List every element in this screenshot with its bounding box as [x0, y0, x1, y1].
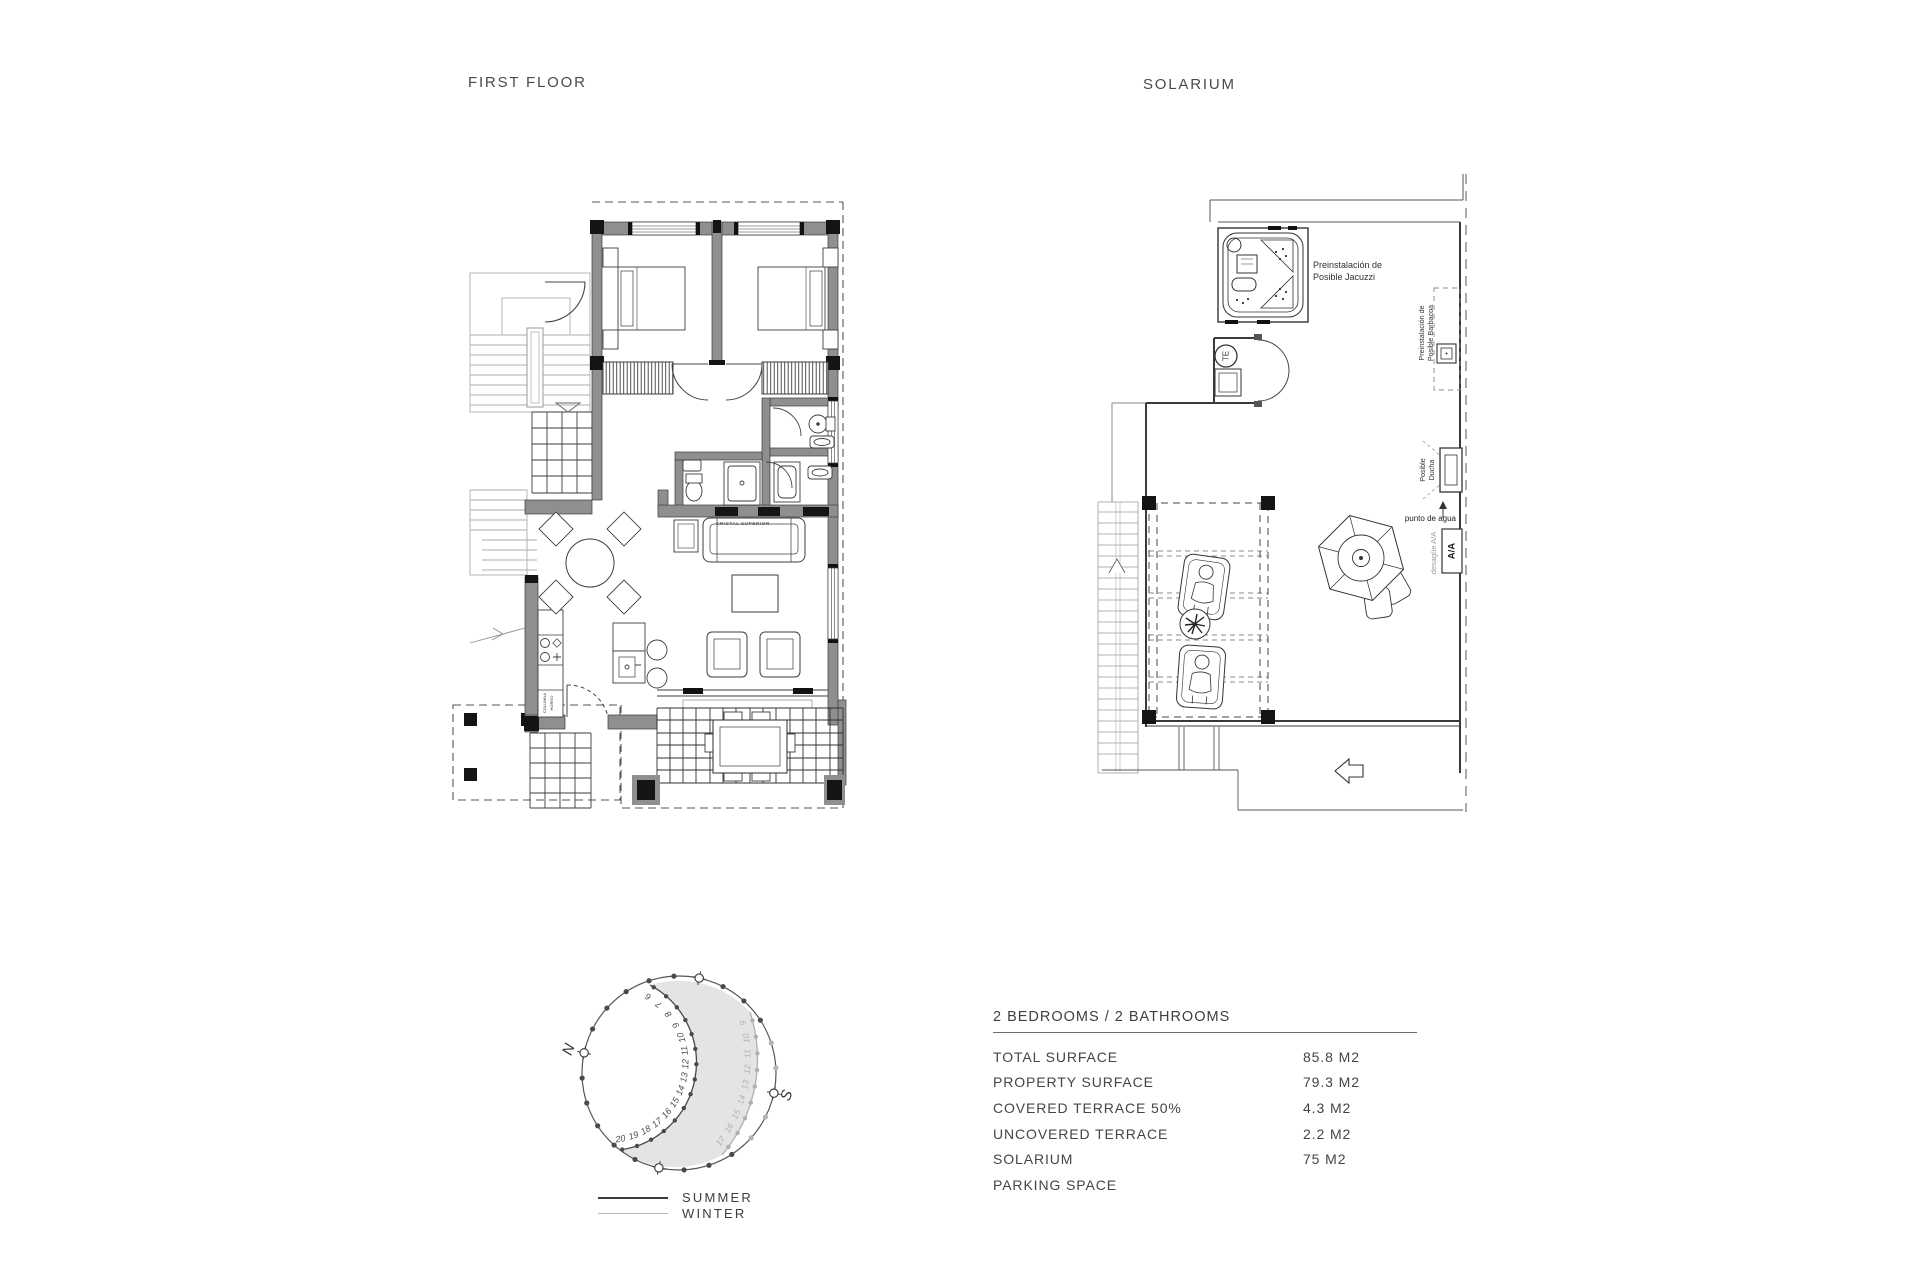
legend-row: WINTER [598, 1206, 753, 1222]
sun-hour-label: 12 [680, 1059, 690, 1069]
north-label: N [560, 1041, 579, 1057]
hour-dot [632, 1157, 637, 1162]
direction-arrow [1335, 759, 1363, 783]
hour-dot [755, 1068, 759, 1072]
entry-patio-grid-upper [532, 403, 592, 493]
hour-dot [693, 1047, 697, 1051]
hour-dot [750, 1018, 754, 1022]
entry-path-grid-lower [530, 733, 591, 808]
spec-row-label: SOLARIUM [993, 1151, 1303, 1167]
hour-dot [673, 1118, 677, 1122]
spec-table-rows: TOTAL SURFACE85.8 M2PROPERTY SURFACE79.3… [993, 1044, 1417, 1198]
svg-text:Preinstalación de: Preinstalación de [1417, 305, 1426, 360]
hour-dot [595, 1123, 600, 1128]
hour-dot [758, 1018, 763, 1023]
hour-dot [675, 1005, 679, 1009]
hour-dot [741, 998, 746, 1003]
jacuzzi-room [1218, 226, 1308, 324]
bedroom-doors [672, 360, 762, 400]
south-label: S [777, 1088, 796, 1103]
spec-row-value: 85.8 M2 [1303, 1049, 1417, 1065]
first-floor-title: FIRST FLOOR [468, 74, 587, 91]
sun-hour-label: 13 [678, 1072, 690, 1084]
solarium-stairs [1098, 502, 1138, 773]
hour-dot [755, 1051, 759, 1055]
spec-row: TOTAL SURFACE85.8 M2 [993, 1044, 1417, 1070]
window-right-1 [828, 401, 838, 463]
hour-dot [720, 984, 725, 989]
spec-row-value: 79.3 M2 [1303, 1074, 1417, 1090]
sun-hour-label: 11 [679, 1045, 690, 1056]
hour-dot [773, 1065, 778, 1070]
hour-dot [682, 1106, 686, 1110]
sun-hour-label: 20 [614, 1133, 626, 1145]
hour-dot [729, 1152, 734, 1157]
legend-label: SUMMER [682, 1190, 753, 1205]
legend-line [598, 1197, 668, 1199]
spec-row-value: 4.3 M2 [1303, 1100, 1417, 1116]
parking-posts [464, 713, 534, 781]
svg-text:A/A: A/A [1447, 543, 1458, 560]
floorplan-sheet: FIRST FLOOR SOLARIUM [0, 0, 1920, 1280]
legend-row: SUMMER [598, 1190, 753, 1206]
hour-dot [693, 1077, 697, 1081]
lounger-2 [1176, 644, 1226, 709]
spec-row-label: UNCOVERED TERRACE [993, 1126, 1303, 1142]
solarium-double-door [1254, 334, 1289, 407]
spec-row-label: COVERED TERRACE 50% [993, 1100, 1303, 1116]
hour-dot [646, 978, 651, 983]
hour-dot [706, 1163, 711, 1168]
dining-set [539, 512, 641, 614]
stair-newel [527, 328, 543, 407]
hour-dot [590, 1026, 595, 1031]
legend-line [598, 1213, 668, 1214]
hex-table-set [1319, 516, 1413, 620]
svg-text:HORNO: HORNO [549, 696, 554, 711]
svg-text:Posible Jacuzzi: Posible Jacuzzi [1313, 272, 1375, 282]
solarium-plan: Preinstalación de Posible Jacuzzi TE Pre… [1085, 160, 1515, 850]
svg-text:Posible: Posible [1418, 458, 1427, 482]
window-top-right [738, 222, 800, 235]
hour-dot [580, 1075, 585, 1080]
spec-row-label: PROPERTY SURFACE [993, 1074, 1303, 1090]
solarium-lower-terrace [1102, 727, 1463, 810]
coffee-table [732, 575, 778, 612]
te-point: TE [1215, 345, 1241, 396]
svg-text:COLUMNA: COLUMNA [542, 693, 547, 713]
legend-label: WINTER [682, 1206, 746, 1221]
hour-dot [754, 1035, 758, 1039]
hour-dot [726, 1145, 730, 1149]
spec-row-label: PARKING SPACE [993, 1177, 1303, 1193]
hour-dot [748, 1135, 753, 1140]
spec-row: SOLARIUM75 M2 [993, 1146, 1417, 1172]
hour-dot [664, 994, 668, 998]
sun-hour-label: 12 [742, 1064, 753, 1074]
cristal-superior-label: CRISTAL SUPERIOR [716, 521, 770, 526]
hour-dot [735, 1131, 739, 1135]
svg-text:Preinstalación de: Preinstalación de [1313, 260, 1382, 270]
hour-dot [689, 1032, 693, 1036]
side-table [674, 520, 698, 552]
stair-door [545, 282, 585, 322]
window-right-2 [828, 568, 838, 639]
spec-row: UNCOVERED TERRACE2.2 M2 [993, 1121, 1417, 1147]
svg-text:punto de agua: punto de agua [1405, 514, 1457, 523]
spec-row: PROPERTY SURFACE79.3 M2 [993, 1070, 1417, 1096]
svg-text:Ducha: Ducha [1427, 460, 1436, 481]
sun-hour-label: 11 [742, 1049, 752, 1058]
jacuzzi-label: Preinstalación de Posible Jacuzzi [1313, 260, 1382, 282]
window-top-left [632, 222, 696, 235]
spec-table-header: 2 BEDROOMS / 2 BATHROOMS [993, 1009, 1417, 1025]
hour-dot [749, 1100, 753, 1104]
hour-dot [671, 974, 676, 979]
hour-dot [662, 1129, 666, 1133]
hour-dot [753, 1084, 757, 1088]
hour-dot [743, 1116, 747, 1120]
terrace-table [705, 712, 795, 781]
hour-dot [604, 1005, 609, 1010]
hour-dot [620, 1147, 624, 1151]
hour-dot [763, 1114, 768, 1119]
desague-aa: desagüe A/A A/A [1429, 529, 1462, 574]
spec-row-value: 2.2 M2 [1303, 1126, 1417, 1142]
armchairs [707, 632, 800, 677]
spec-row-label: TOTAL SURFACE [993, 1049, 1303, 1065]
barbacoa-area: Preinstalación de Posible Barbacoa [1417, 288, 1460, 390]
bed-right [758, 248, 838, 349]
hour-dot [769, 1040, 774, 1045]
kitchen-island [613, 623, 667, 688]
solarium-title: SOLARIUM [1143, 76, 1236, 93]
punto-de-agua: punto de agua [1405, 501, 1457, 523]
hour-dot [688, 1092, 692, 1096]
spec-row: COVERED TERRACE 50%4.3 M2 [993, 1095, 1417, 1121]
svg-text:Posible Barbacoa: Posible Barbacoa [1426, 305, 1435, 361]
bed-left [603, 248, 685, 349]
hour-dot [681, 1167, 686, 1172]
spec-table-rule [993, 1032, 1417, 1033]
hour-dot [584, 1100, 589, 1105]
hour-dot [635, 1144, 639, 1148]
hour-dot [652, 985, 656, 989]
sun-hour-label: 10 [740, 1033, 751, 1044]
sliding-door [657, 688, 828, 708]
entry-door [567, 685, 608, 717]
svg-text:desagüe A/A: desagüe A/A [1429, 532, 1438, 575]
lounger-1 [1177, 553, 1231, 621]
spec-row: PARKING SPACE [993, 1172, 1417, 1198]
ducha-area: Posible Ducha [1418, 441, 1462, 499]
sun-legend: SUMMERWINTER [598, 1190, 753, 1221]
hour-dot [649, 1137, 653, 1141]
hour-dot [694, 1062, 698, 1066]
wardrobes [603, 362, 828, 394]
plant [1180, 609, 1210, 639]
hour-dot [624, 989, 629, 994]
svg-text:TE: TE [1222, 351, 1231, 361]
spec-table: 2 BEDROOMS / 2 BATHROOMS TOTAL SURFACE85… [993, 1009, 1417, 1198]
first-floor-plan: CRISTAL SUPERIOR COLUMNA HORNO [440, 160, 880, 830]
spec-row-value: 75 M2 [1303, 1151, 1417, 1167]
hour-dot [683, 1018, 687, 1022]
